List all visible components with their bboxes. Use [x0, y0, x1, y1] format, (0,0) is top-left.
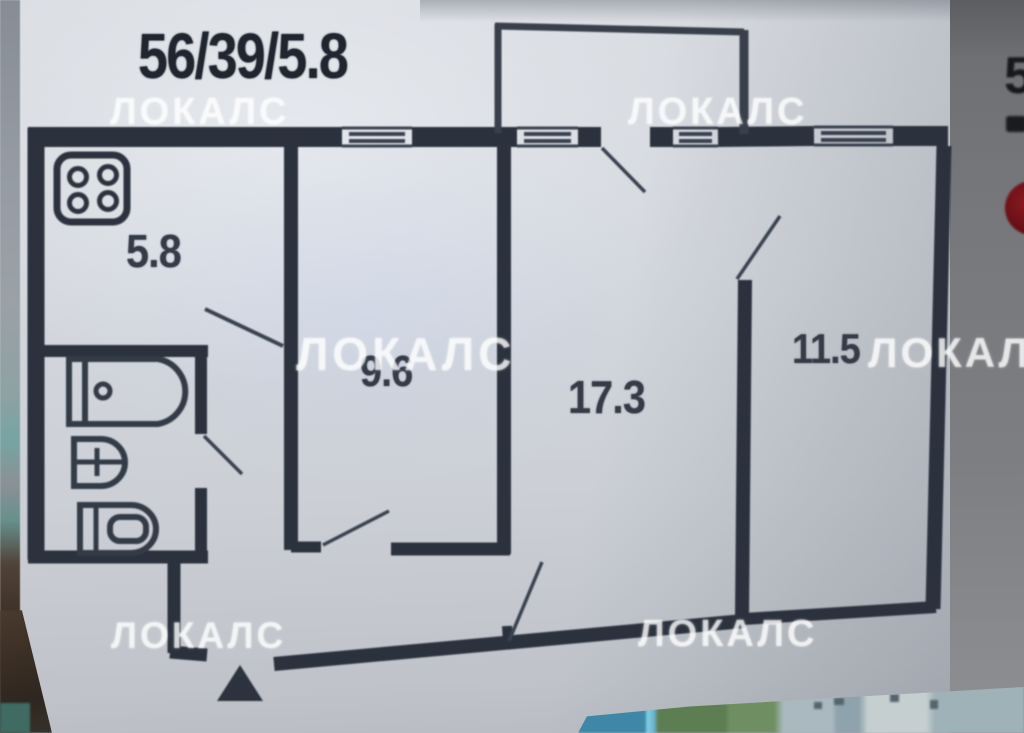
balcony-door-swing [602, 148, 645, 192]
living-door-swing [509, 562, 542, 641]
bathroom-door-swing [204, 436, 242, 474]
stove-icon [57, 155, 127, 222]
wall-right [933, 146, 944, 609]
window-4 [814, 127, 893, 145]
toilet-icon [80, 505, 156, 553]
walls [28, 127, 948, 664]
room-label-kitchen: 5.8 [126, 228, 181, 274]
wall-room2-divider [742, 280, 745, 620]
window-1 [342, 128, 412, 146]
watermark-bottom-center: ЛОКАЛС [638, 615, 817, 653]
watermark-bottom-left: ЛОКАЛС [111, 617, 286, 654]
screenshot-root: 5 [0, 0, 1024, 733]
window-2 [517, 128, 578, 146]
watermark-mid-left: ЛОКАЛС [296, 331, 515, 377]
room-label-bedroom2: 11.5 [792, 328, 860, 370]
room-label-living: 17.3 [568, 374, 645, 420]
room2-door-swing [737, 216, 780, 279]
plan-title: 56/39/5.8 [138, 24, 347, 88]
watermark-mid-right: ЛОКАЛС [868, 332, 1024, 374]
kitchen-door-swing [205, 309, 283, 346]
wall-top-5 [718, 136, 814, 137]
wall-living-door-jamb [507, 626, 508, 644]
bathtub-icon [69, 359, 185, 424]
sink-icon [74, 439, 125, 486]
watermark-top-left: ЛОКАЛС [110, 93, 289, 131]
balcony-top-wall [495, 26, 744, 32]
watermark-top-center: ЛОКАЛС [628, 93, 807, 131]
entrance-arrow-icon [217, 665, 263, 701]
room1-door-swing [323, 511, 389, 545]
